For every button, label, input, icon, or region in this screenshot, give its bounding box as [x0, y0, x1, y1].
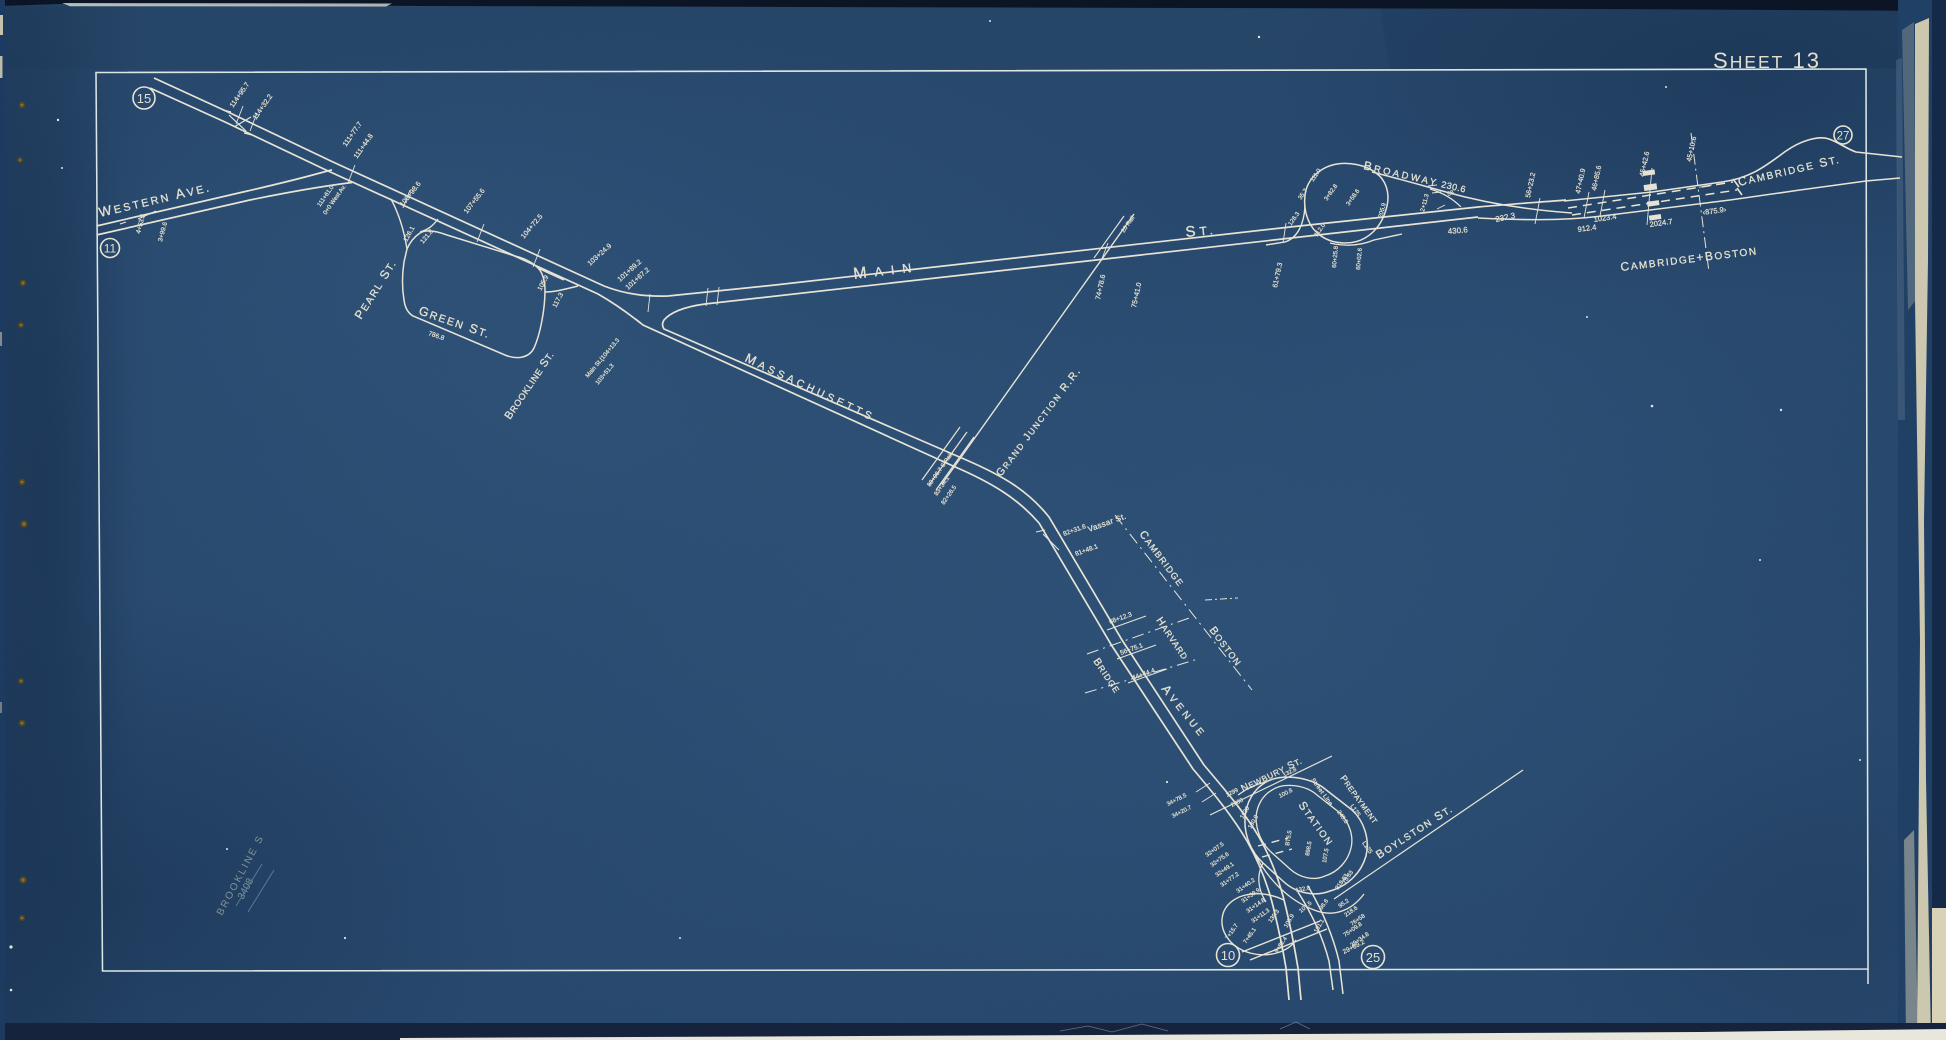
svg-text:11: 11: [104, 242, 117, 256]
svg-text:15: 15: [137, 91, 151, 106]
svg-text:430.6: 430.6: [1447, 225, 1468, 236]
svg-text:10: 10: [1221, 948, 1235, 963]
svg-text:27: 27: [1837, 131, 1850, 143]
svg-text:25: 25: [1366, 950, 1380, 965]
svg-text:SHEET 13: SHEET 13: [1713, 48, 1821, 73]
